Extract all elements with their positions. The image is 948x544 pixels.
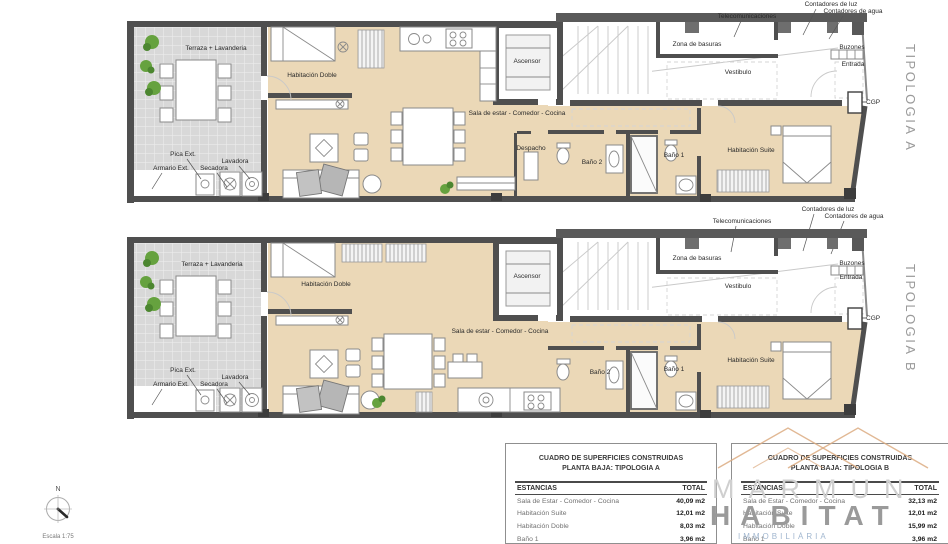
table-b-subtitle: PLANTA BAJA: TIPOLOGIA B bbox=[732, 465, 948, 472]
label-vestibulo: Vestibulo bbox=[725, 69, 752, 76]
label-zona-basuras: Zona de basuras bbox=[673, 255, 723, 262]
tipologia-b-label: TIPOLOGIA B bbox=[903, 264, 918, 373]
room-area: 15,99 m2 bbox=[908, 523, 937, 530]
utility-fixtures bbox=[196, 172, 262, 196]
label-pica: Pica Ext. bbox=[170, 367, 196, 374]
table-row: Habitación Doble8,03 m2 bbox=[515, 520, 707, 533]
table-b-title: CUADRO DE SUPERFICIES CONSTRUIDAS bbox=[732, 455, 948, 462]
stairs bbox=[558, 242, 652, 310]
label-ascensor: Ascensor bbox=[513, 58, 541, 65]
label-cgp: CGP bbox=[866, 99, 880, 106]
room-name: Habitación Doble bbox=[743, 523, 795, 530]
label-telecomunicaciones: Telecomunicaciones bbox=[718, 13, 777, 20]
closet bbox=[342, 244, 382, 262]
closet bbox=[386, 244, 426, 262]
utility-fixtures bbox=[196, 388, 262, 412]
label-suite: Habitación Suite bbox=[727, 357, 775, 364]
elevator bbox=[496, 241, 560, 321]
stove-icon bbox=[524, 392, 551, 410]
shelf bbox=[276, 100, 348, 109]
shelf bbox=[276, 316, 348, 325]
label-buzones: Buzones bbox=[839, 260, 865, 267]
label-buzones: Buzones bbox=[839, 44, 865, 51]
compass-rose-icon bbox=[30, 493, 86, 527]
table-row: Habitación Suite12,01 m2 bbox=[741, 508, 939, 521]
room-name: Habitación Suite bbox=[517, 510, 567, 517]
col-estancias: ESTANCIAS bbox=[743, 485, 783, 492]
label-telecomunicaciones: Telecomunicaciones bbox=[713, 218, 772, 225]
double-bed bbox=[271, 243, 335, 277]
label-lavadora: Lavadora bbox=[221, 158, 248, 165]
room-area: 32,13 m2 bbox=[908, 498, 937, 505]
living-dining-table bbox=[391, 108, 465, 165]
room-name: Sala de Estar - Comedor - Cocina bbox=[743, 498, 845, 505]
surface-table-a: CUADRO DE SUPERFICIES CONSTRUIDAS PLANTA… bbox=[505, 443, 717, 544]
label-terraza: Terraza + Lavanderia bbox=[181, 261, 243, 268]
table-row: Baño 13,96 m2 bbox=[515, 533, 707, 544]
label-bano1: Baño 1 bbox=[664, 366, 685, 373]
table-a-title: CUADRO DE SUPERFICIES CONSTRUIDAS bbox=[506, 455, 716, 462]
table-row: Sala de Estar - Comedor - Cocina32,13 m2 bbox=[741, 495, 939, 508]
label-cgp: CGP bbox=[866, 315, 880, 322]
living-dining-table bbox=[372, 334, 445, 389]
surface-table-b: CUADRO DE SUPERFICIES CONSTRUIDAS PLANTA… bbox=[731, 443, 948, 544]
label-contadores-agua: Contadores de agua bbox=[825, 213, 884, 220]
label-armario: Armario Ext. bbox=[153, 381, 189, 388]
label-suite: Habitación Suite bbox=[727, 147, 775, 154]
label-terraza: Terraza + Lavanderia bbox=[185, 45, 247, 52]
label-hab-doble: Habitación Doble bbox=[287, 72, 337, 79]
label-despacho: Despacho bbox=[516, 145, 546, 152]
label-sala: Sala de estar - Comedor - Cocina bbox=[469, 110, 566, 117]
table-row: Baño 13,96 m2 bbox=[741, 533, 939, 544]
label-bano2: Baño 2 bbox=[582, 159, 603, 166]
label-entrada: Entrada bbox=[842, 61, 865, 68]
col-estancias: ESTANCIAS bbox=[517, 485, 557, 492]
label-zona-basuras: Zona de basuras bbox=[673, 41, 723, 48]
room-name: Sala de Estar - Comedor - Cocina bbox=[517, 498, 619, 505]
col-total: TOTAL bbox=[682, 485, 705, 492]
terrace-dining-table bbox=[160, 60, 231, 122]
label-contadores-luz: Contadores de luz bbox=[802, 206, 855, 213]
dryer-icon bbox=[220, 172, 240, 196]
tipologia-a-label: TIPOLOGIA A bbox=[903, 44, 918, 152]
floor-plan-b: Contadores de luz Contadores de agua Tel… bbox=[100, 203, 895, 427]
table-a-subtitle: PLANTA BAJA: TIPOLOGIA A bbox=[506, 465, 716, 472]
label-vestibulo: Vestibulo bbox=[725, 283, 752, 290]
wardrobe bbox=[717, 386, 769, 408]
label-entrada: Entrada bbox=[840, 274, 863, 281]
label-contadores-agua: Contadores de agua bbox=[824, 8, 883, 15]
room-area: 12,01 m2 bbox=[676, 510, 705, 517]
table-b-header: ESTANCIAS TOTAL bbox=[741, 481, 939, 495]
stove-icon bbox=[446, 29, 472, 48]
floorplan-sheet: { "colors": { "wall": "#4f4f4f", "floor"… bbox=[0, 0, 948, 542]
stairs bbox=[558, 26, 652, 94]
room-name: Habitación Doble bbox=[517, 523, 569, 530]
table-row: Habitación Doble15,99 m2 bbox=[741, 520, 939, 533]
mailboxes bbox=[831, 50, 863, 59]
label-ascensor: Ascensor bbox=[513, 273, 541, 280]
room-area: 40,09 m2 bbox=[676, 498, 705, 505]
label-bano1: Baño 1 bbox=[664, 152, 685, 159]
label-sala: Sala de estar - Comedor - Cocina bbox=[452, 328, 549, 335]
entry-door-arc bbox=[811, 287, 837, 313]
dryer-icon bbox=[220, 388, 240, 412]
terrace-dining-table bbox=[160, 276, 231, 338]
closet bbox=[358, 30, 384, 68]
desk bbox=[524, 152, 538, 180]
compass: N bbox=[30, 486, 86, 532]
label-pica: Pica Ext. bbox=[170, 151, 196, 158]
table-a-header: ESTANCIAS TOTAL bbox=[515, 481, 707, 495]
room-area: 8,03 m2 bbox=[680, 523, 705, 530]
label-secadora: Secadora bbox=[200, 165, 228, 172]
label-lavadora: Lavadora bbox=[221, 374, 248, 381]
label-armario: Armario Ext. bbox=[153, 165, 189, 172]
col-total: TOTAL bbox=[914, 485, 937, 492]
label-contadores-luz: Contadores de luz bbox=[805, 1, 858, 8]
washer-icon bbox=[242, 388, 262, 412]
room-name: Habitación Suite bbox=[743, 510, 793, 517]
elevator bbox=[496, 25, 560, 105]
tv-bench bbox=[457, 177, 515, 190]
table-row: Sala de Estar - Comedor - Cocina40,09 m2 bbox=[515, 495, 707, 508]
table-row: Habitación Suite12,01 m2 bbox=[515, 508, 707, 521]
label-hab-doble: Habitación Doble bbox=[301, 281, 351, 288]
room-area: 12,01 m2 bbox=[908, 510, 937, 517]
washer-icon bbox=[242, 172, 262, 196]
north-label: N bbox=[30, 486, 86, 493]
scale-label: Escala 1:75 bbox=[24, 534, 92, 540]
entry-door-arc bbox=[811, 71, 837, 97]
label-bano2: Baño 2 bbox=[590, 369, 611, 376]
kitchen-counter bbox=[458, 388, 560, 412]
label-secadora: Secadora bbox=[200, 381, 228, 388]
wardrobe bbox=[717, 170, 769, 192]
radiator bbox=[416, 392, 432, 412]
floor-plan-a: Terraza + Lavanderia Pica Ext. Lavadora … bbox=[100, 0, 895, 216]
